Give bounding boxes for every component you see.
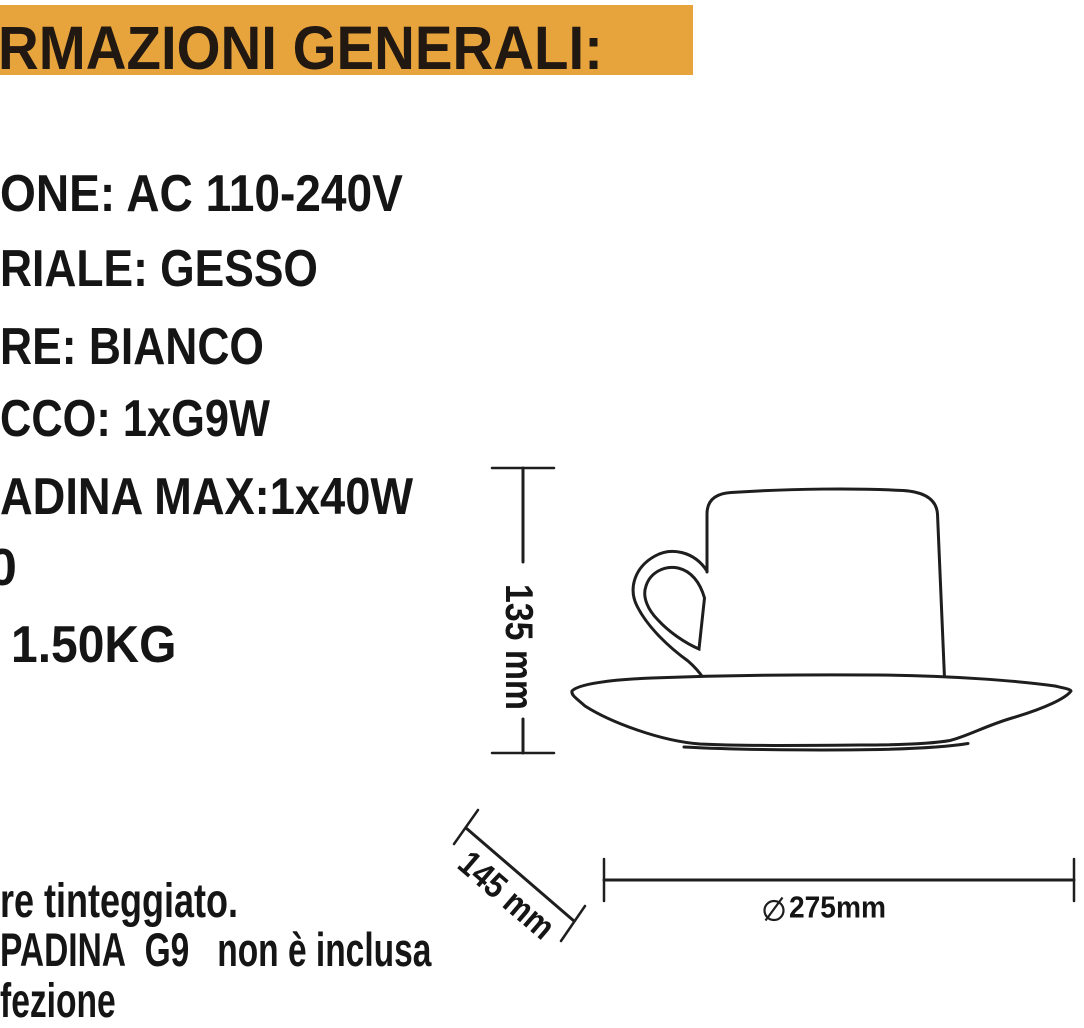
svg-text:275mm: 275mm — [789, 890, 886, 925]
svg-text:135 mm: 135 mm — [498, 584, 542, 710]
svg-text:145 mm: 145 mm — [451, 843, 563, 947]
